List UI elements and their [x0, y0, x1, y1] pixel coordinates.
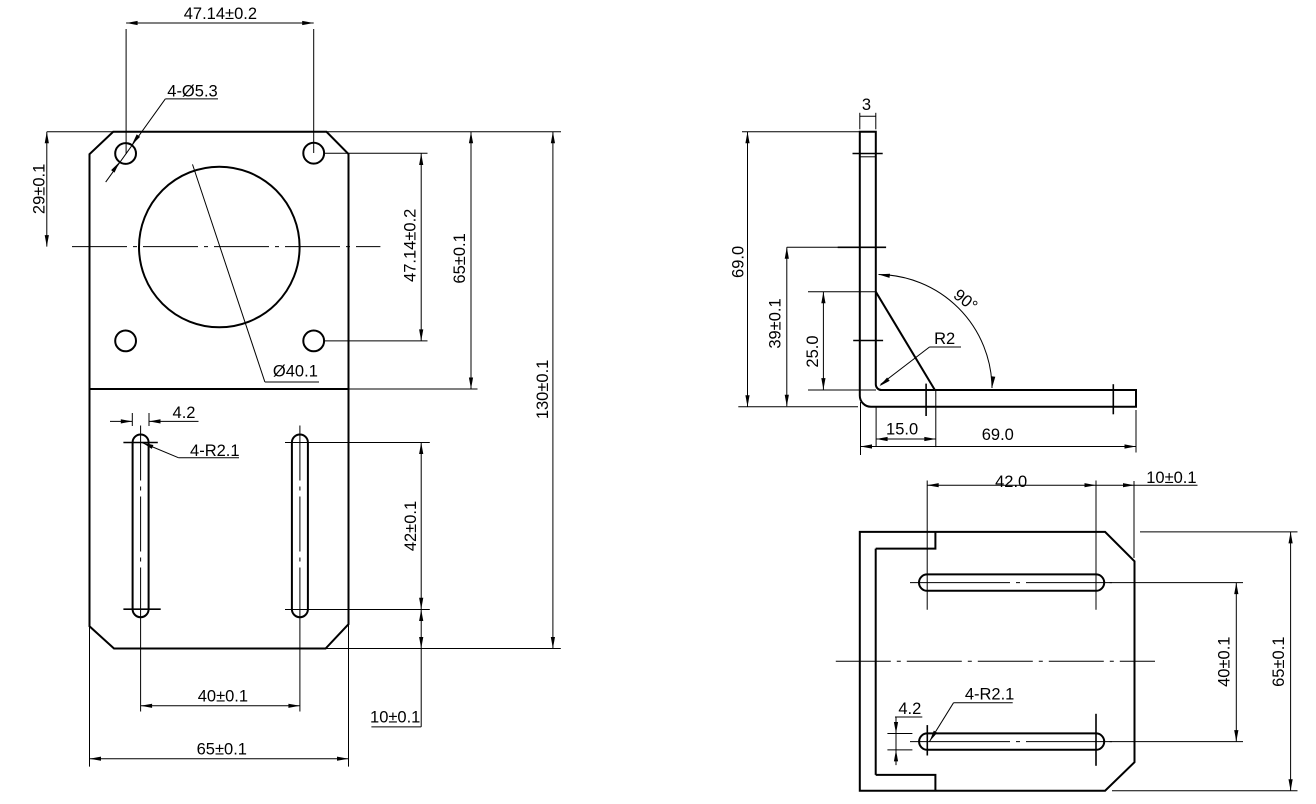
svg-text:4.2: 4.2 [173, 404, 196, 422]
svg-text:42±0.1: 42±0.1 [402, 501, 420, 551]
svg-text:69.0: 69.0 [982, 426, 1014, 444]
svg-text:65±0.1: 65±0.1 [197, 741, 247, 759]
svg-text:10±0.1: 10±0.1 [370, 709, 420, 727]
svg-text:4-R2.1: 4-R2.1 [965, 686, 1015, 704]
svg-text:25.0: 25.0 [804, 335, 822, 367]
svg-text:10±0.1: 10±0.1 [1146, 469, 1196, 487]
svg-text:40±0.1: 40±0.1 [198, 688, 248, 706]
svg-text:65±0.1: 65±0.1 [451, 233, 469, 283]
svg-text:4.2: 4.2 [898, 700, 921, 718]
svg-text:65±0.1: 65±0.1 [1270, 637, 1288, 687]
svg-text:130±0.1: 130±0.1 [534, 360, 552, 420]
svg-text:42.0: 42.0 [995, 473, 1027, 491]
svg-text:39±0.1: 39±0.1 [767, 298, 785, 348]
svg-text:69.0: 69.0 [729, 246, 747, 278]
svg-text:R2: R2 [934, 330, 955, 348]
svg-text:47.14±0.2: 47.14±0.2 [184, 5, 257, 23]
svg-text:47.14±0.2: 47.14±0.2 [402, 209, 420, 282]
svg-text:15.0: 15.0 [886, 421, 918, 439]
svg-text:40±0.1: 40±0.1 [1216, 637, 1234, 687]
svg-text:29±0.1: 29±0.1 [31, 164, 49, 214]
svg-text:Ø40.1: Ø40.1 [273, 363, 318, 381]
svg-text:4-R2.1: 4-R2.1 [190, 442, 240, 460]
svg-text:3: 3 [862, 96, 871, 114]
svg-text:4-Ø5.3: 4-Ø5.3 [167, 82, 217, 100]
